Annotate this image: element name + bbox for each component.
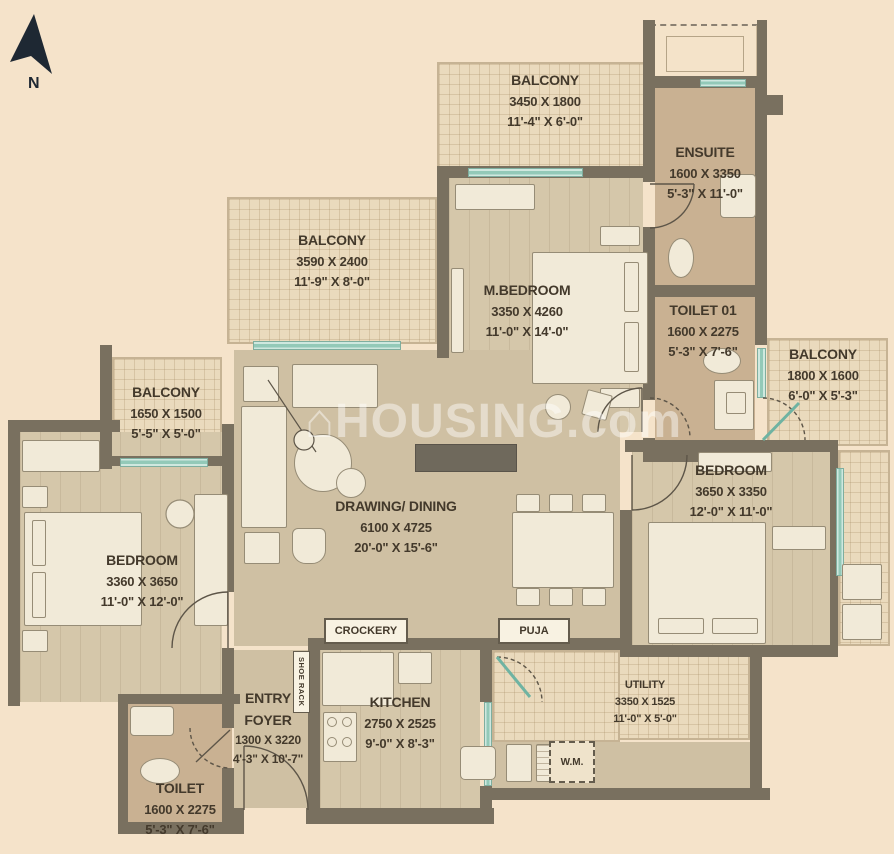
room-label-balcony-top: BALCONY 3450 X 1800 11'-4" X 6'-0" bbox=[465, 70, 625, 132]
room-label-utility: UTILITY 3350 X 1525 11'-0" X 5'-0" bbox=[585, 677, 705, 728]
room-dims-mm: 3650 X 3350 bbox=[651, 482, 811, 502]
washing-machine-tag: W.M. bbox=[549, 741, 595, 783]
room-dims-mm: 1600 X 3350 bbox=[653, 164, 757, 184]
room-dims-ft: 11'-0" X 12'-0" bbox=[62, 592, 222, 612]
room-label-ensuite: ENSUITE 1600 X 3350 5'-3" X 11'-0" bbox=[653, 142, 757, 204]
room-name: M.BEDROOM bbox=[452, 280, 602, 302]
room-label-balcony-upper-left: BALCONY 3590 X 2400 11'-9" X 8'-0" bbox=[247, 230, 417, 292]
room-dims-ft: 11'-9" X 8'-0" bbox=[247, 272, 417, 292]
watermark-text: HOUSING.com bbox=[335, 395, 682, 448]
room-name: ENSUITE bbox=[653, 142, 757, 164]
room-dims-ft: 5'-5" X 5'-0" bbox=[106, 424, 226, 444]
room-dims-ft: 5'-3" X 11'-0" bbox=[653, 184, 757, 204]
room-label-balcony-left: BALCONY 1650 X 1500 5'-5" X 5'-0" bbox=[106, 382, 226, 444]
north-label: N bbox=[28, 75, 40, 92]
room-dims-mm: 1600 X 2275 bbox=[647, 322, 759, 342]
room-label-bedroom-right: BEDROOM 3650 X 3350 12'-0" X 11'-0" bbox=[651, 460, 811, 522]
room-label-drawing-dining: DRAWING/ DINING 6100 X 4725 20'-0" X 15'… bbox=[306, 496, 486, 558]
room-label-toilet: TOILET 1600 X 2275 5'-3" X 7'-6" bbox=[120, 778, 240, 840]
room-name: KITCHEN bbox=[330, 692, 470, 714]
shoe-rack-tag: SHOE RACK bbox=[293, 651, 310, 713]
room-name: BALCONY bbox=[465, 70, 625, 92]
room-dims-mm: 1600 X 2275 bbox=[120, 800, 240, 820]
room-label-bedroom-left: BEDROOM 3360 X 3650 11'-0" X 12'-0" bbox=[62, 550, 222, 612]
desk-chair bbox=[166, 500, 194, 528]
room-name: TOILET bbox=[120, 778, 240, 800]
room-label-balcony-right: BALCONY 1800 X 1600 6'-0" X 5'-3" bbox=[762, 344, 884, 406]
room-name: DRAWING/ DINING bbox=[306, 496, 486, 518]
room-dims-ft: 20'-0" X 15'-6" bbox=[306, 538, 486, 558]
room-dims-ft: 9'-0" X 8'-3" bbox=[330, 734, 470, 754]
room-label-kitchen: KITCHEN 2750 X 2525 9'-0" X 8'-3" bbox=[330, 692, 470, 754]
room-name: BEDROOM bbox=[62, 550, 222, 572]
room-dims-mm: 1300 X 3220 bbox=[225, 731, 311, 750]
room-dims-ft: 4'-3" X 10'-7" bbox=[225, 750, 311, 769]
room-name: BALCONY bbox=[762, 344, 884, 366]
puja-tag: PUJA bbox=[498, 618, 570, 644]
room-dims-ft: 11'-0" X 5'-0" bbox=[585, 711, 705, 728]
room-dims-mm: 1800 X 1600 bbox=[762, 366, 884, 386]
room-name: UTILITY bbox=[585, 677, 705, 694]
room-dims-mm: 6100 X 4725 bbox=[306, 518, 486, 538]
room-dims-mm: 3350 X 1525 bbox=[585, 694, 705, 711]
room-label-master-bedroom: M.BEDROOM 3350 X 4260 11'-0" X 14'-0" bbox=[452, 280, 602, 342]
watermark-house-icon: ⌂ bbox=[305, 395, 335, 448]
room-dims-mm: 2750 X 2525 bbox=[330, 714, 470, 734]
room-dims-ft: 12'-0" X 11'-0" bbox=[651, 502, 811, 522]
room-dims-ft: 11'-4" X 6'-0" bbox=[465, 112, 625, 132]
room-name: BEDROOM bbox=[651, 460, 811, 482]
room-dims-ft: 5'-3" X 7'-6" bbox=[120, 820, 240, 840]
room-dims-mm: 3350 X 4260 bbox=[452, 302, 602, 322]
room-dims-mm: 3360 X 3650 bbox=[62, 572, 222, 592]
glass-door-leaf-passage bbox=[497, 657, 530, 697]
room-name: TOILET 01 bbox=[647, 300, 759, 322]
room-dims-ft: 11'-0" X 14'-0" bbox=[452, 322, 602, 342]
room-label-toilet-01: TOILET 01 1600 X 2275 5'-3" X 7'-6" bbox=[647, 300, 759, 362]
room-name: BALCONY bbox=[247, 230, 417, 252]
floor-plan: N ⌂HOUSING.com BALCONY 3450 X 1800 11'-4… bbox=[0, 0, 894, 854]
room-dims-mm: 1650 X 1500 bbox=[106, 404, 226, 424]
room-dims-mm: 3450 X 1800 bbox=[465, 92, 625, 112]
room-name: BALCONY bbox=[106, 382, 226, 404]
glass-door-leaf-balcony-right bbox=[763, 403, 799, 440]
north-arrow-icon bbox=[10, 14, 52, 74]
crockery-tag: CROCKERY bbox=[324, 618, 408, 644]
room-dims-ft: 6'-0" X 5'-3" bbox=[762, 386, 884, 406]
room-dims-mm: 3590 X 2400 bbox=[247, 252, 417, 272]
watermark: ⌂HOUSING.com bbox=[305, 394, 682, 449]
room-dims-ft: 5'-3" X 7'-6" bbox=[647, 342, 759, 362]
